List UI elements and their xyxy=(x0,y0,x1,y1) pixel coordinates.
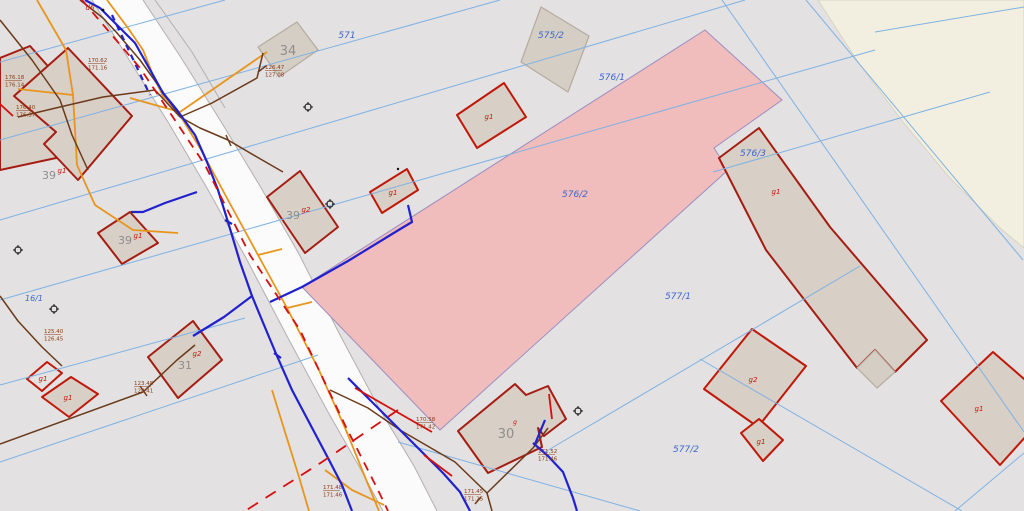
building-label-39-2: 39 xyxy=(286,209,300,222)
measurement-top: 176.40 xyxy=(16,105,36,111)
measurement-bottom: 126.45 xyxy=(44,337,64,343)
parcel-label-16-1: 16/1 xyxy=(25,294,43,303)
measurement-top: 176.18 xyxy=(5,75,25,81)
building-label-g1-mid: g1 xyxy=(485,113,494,121)
utility-label-d6: d6 xyxy=(86,4,95,12)
measurement-label: 176.18 176.14 xyxy=(5,75,25,89)
measurement-top: 126.47 xyxy=(265,65,285,71)
building-label-g1-filled-left: g1 xyxy=(64,394,73,402)
point-marker-icon xyxy=(102,9,105,12)
measurement-top: 171.45 xyxy=(464,489,484,495)
measurement-top: 171.48 xyxy=(323,485,343,491)
building-label-39-main: 39 xyxy=(42,169,56,182)
building-label-34: 34 xyxy=(280,44,297,59)
building-label-39-lower-g1: g1 xyxy=(134,232,143,240)
measurement-label: 125.40 126.45 xyxy=(44,329,64,343)
parcel-label-571: 571 xyxy=(338,31,355,41)
building-label-39-lower: 39 xyxy=(118,234,132,247)
measurement-bottom: 171.16 xyxy=(88,66,108,72)
building-label-g2: g2 xyxy=(749,376,758,384)
measurement-label: 170.58 171.42 xyxy=(416,417,436,431)
parcel-label-576-3: 576/3 xyxy=(740,149,766,159)
measurement-bottom: 171.42 xyxy=(416,425,435,431)
measurement-top: 170.62 xyxy=(88,58,107,64)
building-label-31: 31 xyxy=(178,359,192,372)
measurement-bottom: 171.46 xyxy=(323,493,343,499)
building-label-39-main-g1: g1 xyxy=(58,167,67,175)
building-label-31-g2: g2 xyxy=(193,350,202,358)
point-marker-icon xyxy=(397,168,399,170)
building-label-30: 30 xyxy=(498,427,515,442)
measurement-bottom: 176.14 xyxy=(5,83,25,89)
measurement-bottom: 171.46 xyxy=(538,457,558,463)
building-label-30-g: g xyxy=(513,419,517,426)
measurement-top: 125.40 xyxy=(44,329,64,335)
parcel-label-577-2: 577/2 xyxy=(673,445,699,455)
measurement-top: 170.58 xyxy=(416,417,436,423)
building-label-39-2-g2: g2 xyxy=(302,206,311,214)
measurement-label: 176.40 176.37 xyxy=(16,105,36,119)
map-canvas[interactable]: 571 575/2 576/1 576/2 576/3 577/1 577/2 … xyxy=(0,0,1024,511)
building-label-g1-upper: g1 xyxy=(389,189,398,197)
measurement-top: 123.48 xyxy=(134,381,154,387)
parcel-label-577-1: 577/1 xyxy=(665,292,691,302)
parcel-label-576-2: 576/2 xyxy=(562,190,588,200)
measurement-label: 171.48 171.46 xyxy=(323,485,343,499)
measurement-bottom: 127.08 xyxy=(265,73,285,79)
measurement-bottom: 176.37 xyxy=(16,113,36,119)
measurement-bottom: 128.41 xyxy=(134,389,153,395)
measurement-label: 123.48 128.41 xyxy=(134,381,154,395)
measurement-label: 126.47 127.08 xyxy=(265,65,285,79)
parcel-label-576-1: 576/1 xyxy=(599,73,625,83)
measurement-top: 171.52 xyxy=(538,449,557,455)
measurement-bottom: 171.25 xyxy=(464,497,484,503)
parcel-label-575-2: 575/2 xyxy=(538,31,564,41)
building-label-g1-right-edge: g1 xyxy=(975,405,984,413)
building-label-g1-small-right: g1 xyxy=(757,438,766,446)
building-label-576-3-g1: g1 xyxy=(772,188,781,196)
measurement-label: 170.62 171.16 xyxy=(88,58,108,72)
building-label-g1-outline-left: g1 xyxy=(39,375,48,383)
measurement-label: 171.52 171.46 xyxy=(538,449,558,463)
measurement-label: 171.45 171.25 xyxy=(464,489,484,503)
